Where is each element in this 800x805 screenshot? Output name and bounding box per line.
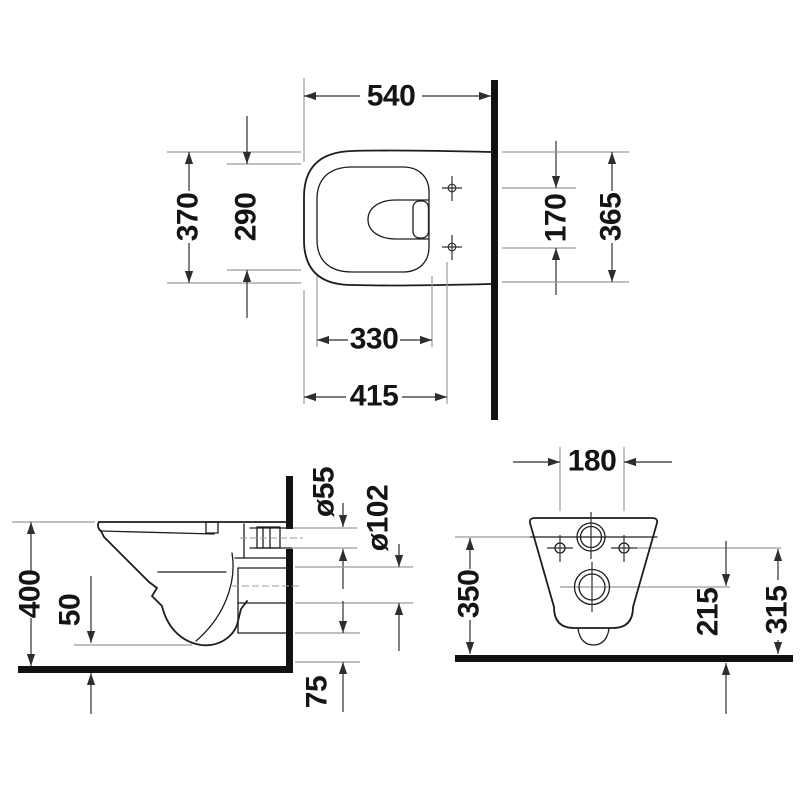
- dim-label-o55: ø55: [308, 467, 341, 517]
- flush-opening-outline: [368, 200, 429, 239]
- dim-bowl-base-offset: 50: [54, 576, 193, 714]
- dim-label-330: 330: [350, 323, 399, 356]
- flush-inlet-circle: [577, 512, 605, 559]
- dim-label-170: 170: [540, 194, 573, 243]
- dim-bowl-inner-length: 330: [317, 276, 432, 356]
- dim-body-height: 350: [453, 538, 486, 654]
- fixing-hole-marker: [547, 535, 573, 562]
- fixing-hole-marker: [442, 235, 462, 260]
- dim-fixing-hole-spacing-rear: 180: [513, 445, 672, 478]
- dim-fixing-hole-height: 315: [761, 549, 794, 654]
- wall-section-line: [491, 80, 498, 420]
- floor-line: [455, 655, 793, 662]
- dim-label-415: 415: [350, 380, 399, 413]
- dim-label-50: 50: [54, 594, 87, 626]
- dim-label-315: 315: [761, 586, 794, 635]
- dim-label-400: 400: [14, 570, 47, 619]
- side-view: 400 50 ø55 ø102 75: [12, 467, 413, 714]
- dim-bottom-clearance: 75: [295, 601, 360, 712]
- wall-section-line: [286, 476, 293, 529]
- top-view: 540 370 290 170 365: [167, 78, 629, 420]
- fixing-hole-marker: [442, 176, 462, 201]
- seat-inner-outline: [317, 167, 429, 272]
- dim-label-215: 215: [692, 588, 725, 637]
- dim-label-350: 350: [453, 570, 486, 619]
- dim-label-o102: ø102: [362, 485, 395, 551]
- toilet-profile-outline: [98, 522, 286, 645]
- dim-overall-depth: 540: [304, 78, 491, 162]
- dim-fixing-hole-spacing-top: 170: [502, 141, 576, 295]
- floor-line: [18, 666, 293, 673]
- dim-label-180: 180: [568, 445, 617, 478]
- drawing-canvas: 540 370 290 170 365: [0, 0, 800, 800]
- dim-bowl-inner-width: 290: [227, 116, 301, 318]
- dim-outlet-center-height: 215: [692, 541, 727, 714]
- rear-extension-lines: [455, 447, 781, 587]
- fixing-hole-marker: [611, 535, 637, 562]
- flush-connector-pipe: [232, 527, 357, 586]
- dim-label-75: 75: [301, 676, 334, 708]
- dim-label-540: 540: [367, 80, 416, 113]
- dim-label-290: 290: [230, 193, 263, 242]
- wall-section-line: [286, 549, 293, 672]
- dim-label-370: 370: [172, 193, 205, 242]
- rear-view: 180 350 215 315: [453, 445, 794, 715]
- dim-label-365: 365: [595, 193, 628, 242]
- technical-drawing: 540 370 290 170 365: [0, 0, 800, 800]
- toilet-rear-outline: [530, 518, 657, 645]
